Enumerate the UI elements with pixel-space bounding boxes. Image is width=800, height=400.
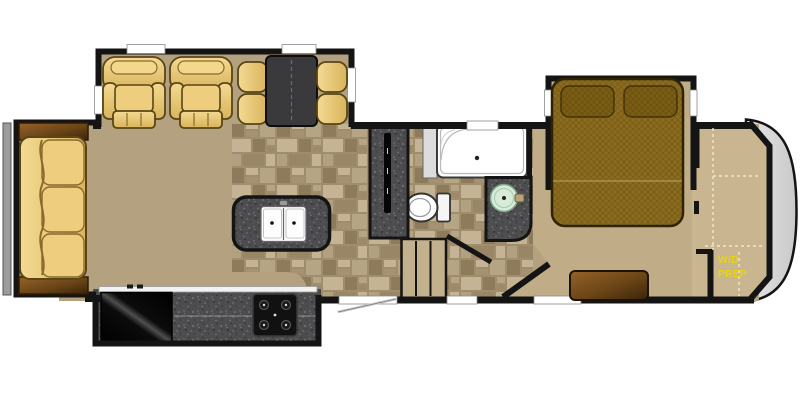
toilet [406,194,451,222]
stove [253,294,297,336]
recliner [103,57,165,128]
window [690,90,697,116]
window [282,45,316,54]
recliner [170,57,232,128]
shower-door-track [423,126,437,178]
wd-prep-line1: W/D [718,255,739,266]
sofa [20,137,86,279]
bed [552,79,683,226]
window [95,86,103,114]
floorplan-drawing: W/D PREP [0,0,800,400]
wd-prep-line2: PREP [718,269,747,280]
window [127,45,165,54]
rv-floorplan: W/D PREP [0,0,800,400]
kitchen-counter-slideout [93,285,321,346]
shower-tub [437,125,527,178]
refrigerator [101,293,172,343]
window [348,68,356,102]
slide-out-extension-bar [3,123,11,295]
bathroom-vanity [486,178,531,241]
dinette-booth [238,56,347,126]
window [545,90,552,116]
dresser [570,271,648,300]
window [467,121,498,130]
entertainment-cabinet [370,127,408,238]
rear-sofa-slideout [19,123,88,294]
window [447,296,477,304]
vanity-faucet [515,194,524,202]
kitchen-island [234,197,330,250]
island-faucet [280,201,288,206]
island-double-sink [261,201,306,242]
shower-drain [475,156,479,160]
entry-steps [402,239,447,298]
